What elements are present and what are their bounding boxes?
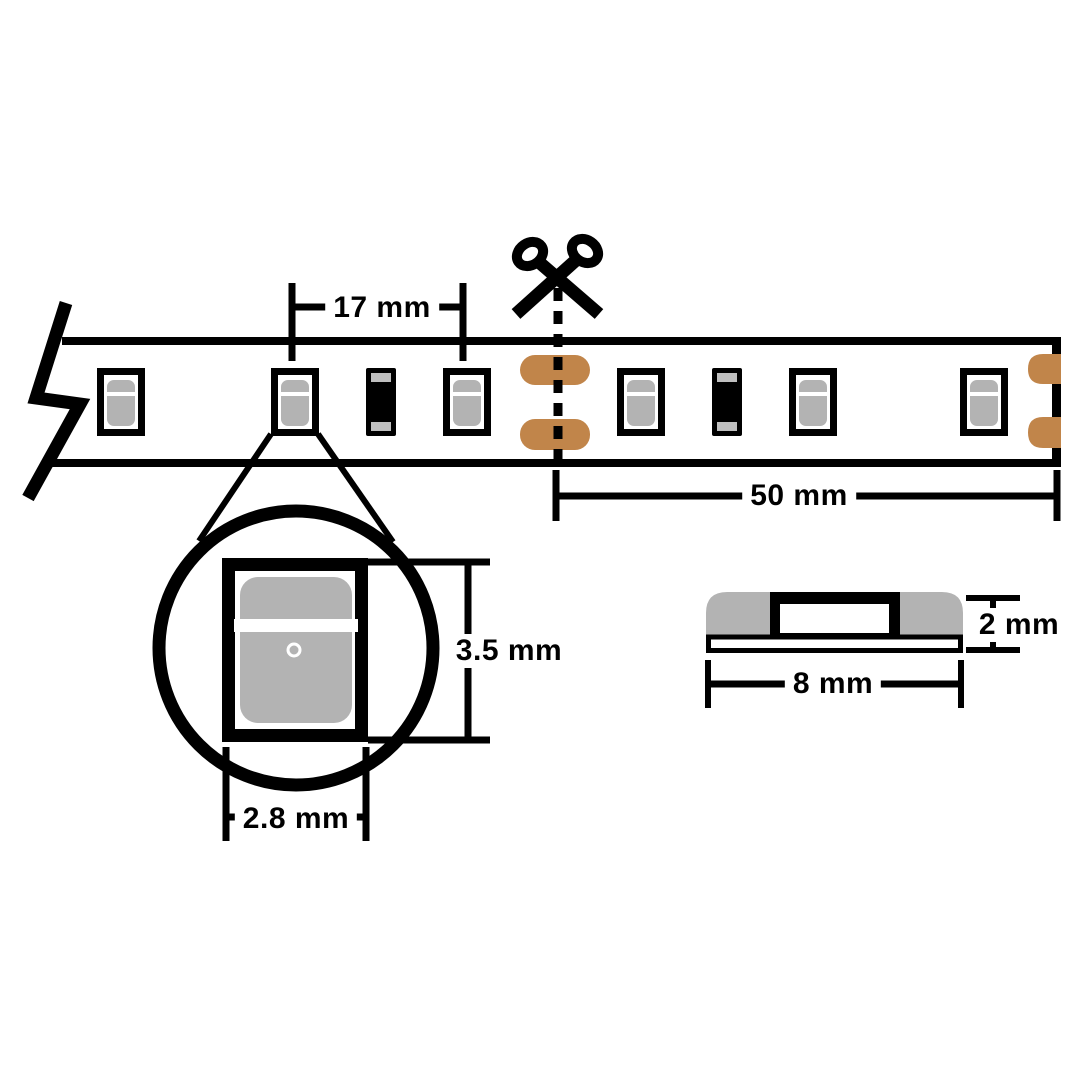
led-component: [789, 368, 837, 436]
solder-pad-end: [1028, 354, 1061, 384]
dim-label-led-length: 3.5 mm: [448, 634, 570, 668]
diagram-artwork: [0, 0, 1080, 1080]
scissors-icon: [512, 234, 603, 314]
dim-label-strip-thickness: 2 mm: [971, 608, 1067, 642]
led-component: [271, 368, 319, 436]
profile-led-window: [780, 604, 889, 633]
resistor-component: [366, 368, 396, 436]
dim-label-strip-width: 8 mm: [785, 667, 881, 701]
led-component: [960, 368, 1008, 436]
resistor-component: [712, 368, 742, 436]
strip-break-zigzag-icon: [28, 303, 80, 498]
dim-label-cut-interval: 50 mm: [742, 479, 856, 513]
dim-label-led-pitch: 17 mm: [325, 291, 439, 325]
magnified-led: [229, 565, 362, 736]
solder-pad-end: [1028, 417, 1061, 448]
magnifier-callout: [159, 434, 490, 841]
led-component: [443, 368, 491, 436]
led-strip-top-view: [28, 303, 1061, 498]
diagram-canvas: 17 mm 50 mm 3.5 mm 2.8 mm 8 mm 2 mm: [0, 0, 1080, 1080]
profile-pcb-base: [709, 637, 961, 651]
led-component: [617, 368, 665, 436]
led-component: [97, 368, 145, 436]
dim-label-led-width: 2.8 mm: [235, 802, 357, 836]
